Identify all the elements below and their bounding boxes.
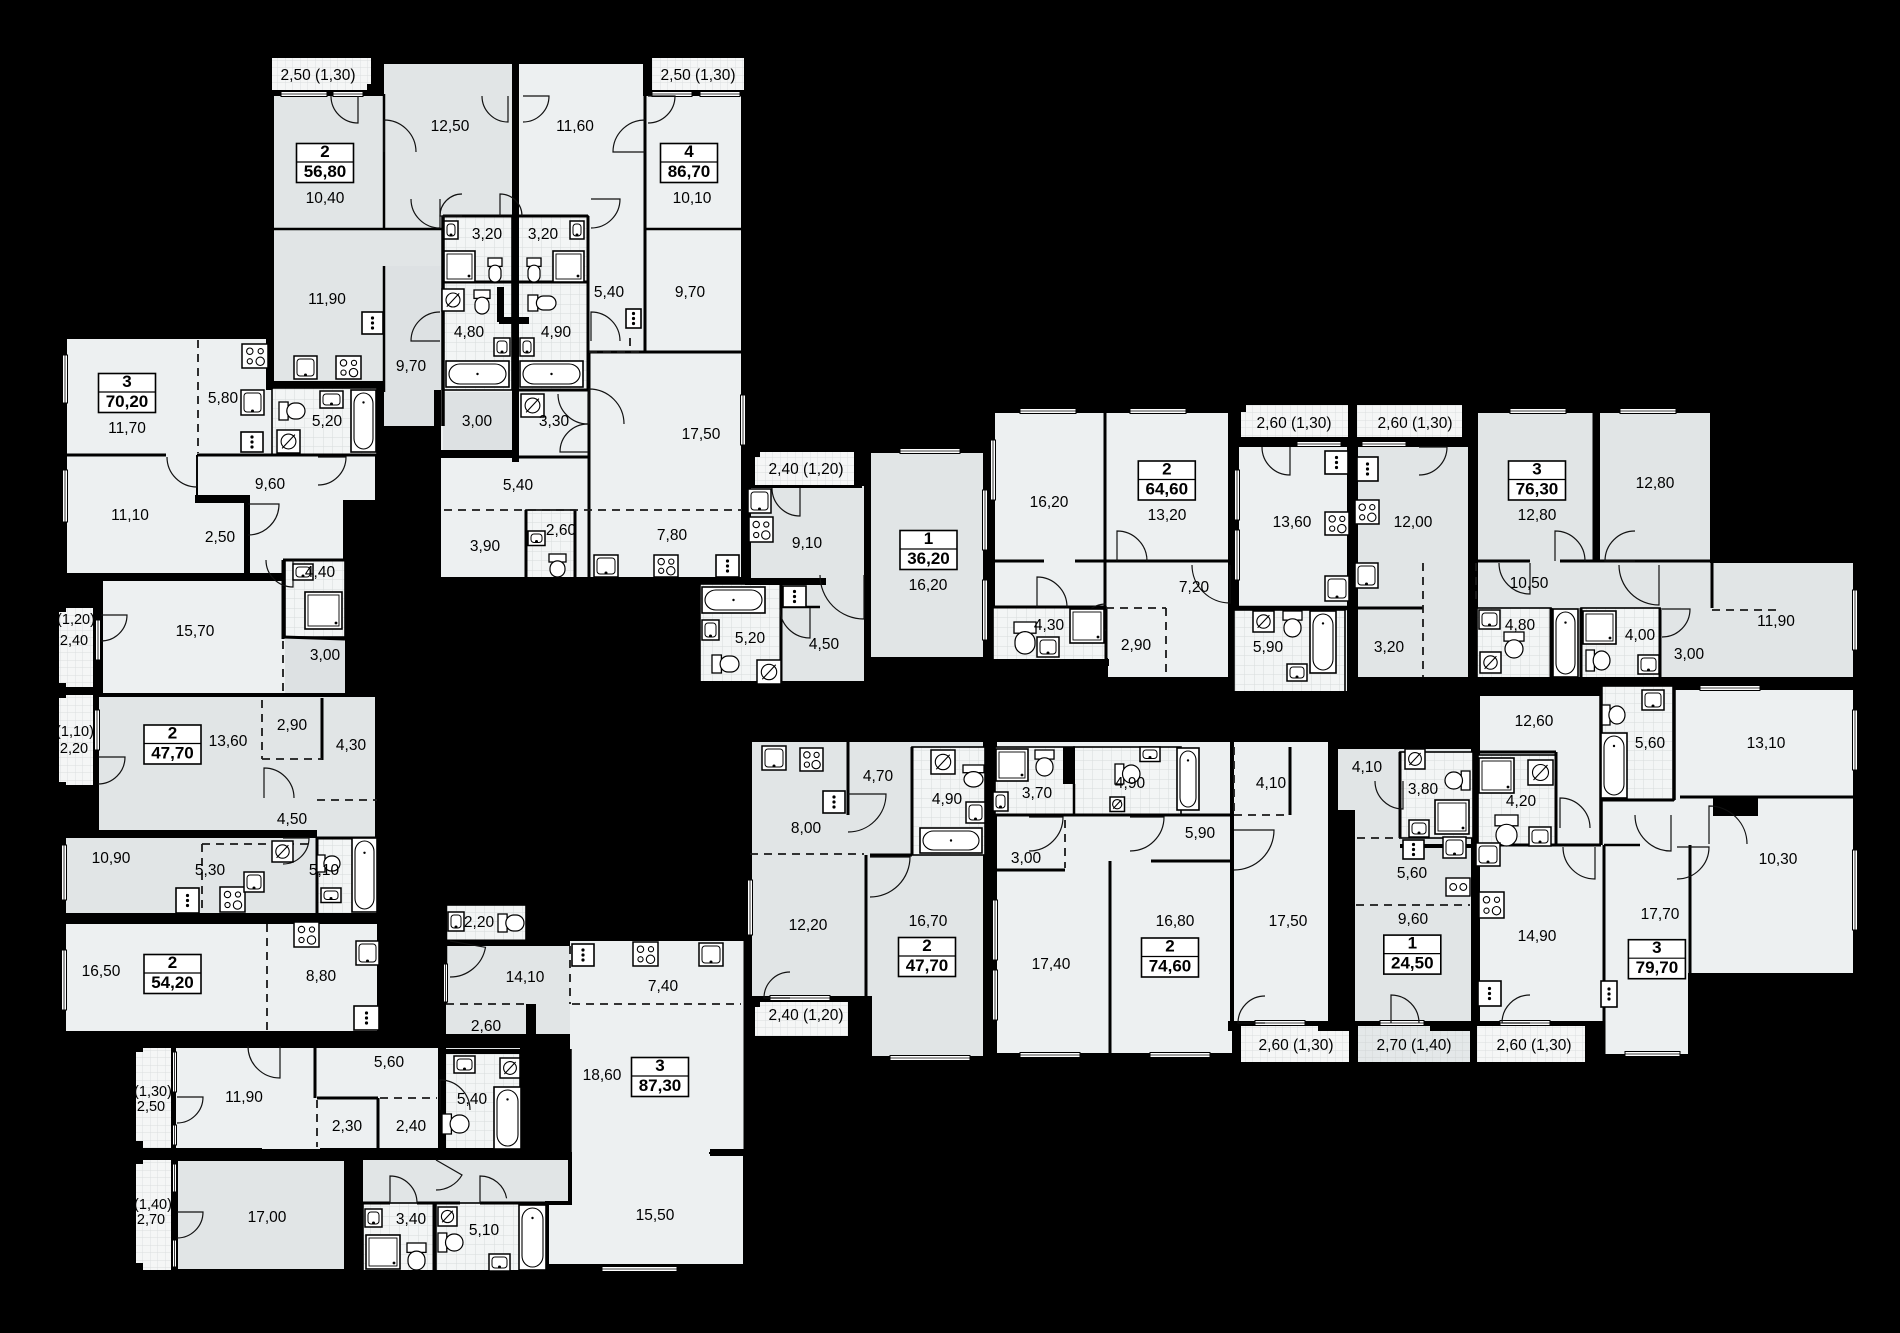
svg-text:2,50 (1,30): 2,50 (1,30): [281, 67, 356, 84]
svg-text:12,80: 12,80: [1636, 475, 1675, 492]
svg-text:2,60 (1,30): 2,60 (1,30): [1497, 1037, 1572, 1054]
svg-text:11,60: 11,60: [556, 118, 594, 135]
svg-text:3: 3: [655, 1056, 664, 1075]
svg-text:5,20: 5,20: [312, 413, 343, 430]
svg-text:4,50: 4,50: [277, 811, 308, 828]
svg-text:10,50: 10,50: [1510, 575, 1549, 592]
svg-text:3: 3: [122, 372, 131, 391]
svg-text:5,40: 5,40: [503, 477, 534, 494]
svg-text:70,20: 70,20: [106, 392, 149, 411]
svg-text:12,20: 12,20: [789, 917, 828, 934]
svg-text:54,20: 54,20: [151, 973, 194, 992]
svg-text:2: 2: [320, 142, 329, 161]
svg-text:3,90: 3,90: [470, 538, 501, 555]
svg-text:4,00: 4,00: [1625, 627, 1656, 644]
svg-text:17,50: 17,50: [1269, 913, 1308, 930]
svg-text:3,00: 3,00: [1674, 646, 1705, 663]
svg-text:2,70 (1,40): 2,70 (1,40): [1377, 1037, 1452, 1054]
svg-text:7,80: 7,80: [657, 527, 688, 544]
svg-text:13,60: 13,60: [1273, 514, 1312, 531]
svg-text:8,00: 8,00: [791, 820, 822, 837]
svg-text:(1,40): (1,40): [134, 1197, 172, 1213]
svg-text:2,60 (1,30): 2,60 (1,30): [1259, 1037, 1334, 1054]
svg-text:3,20: 3,20: [528, 226, 559, 243]
svg-text:18,60: 18,60: [583, 1067, 622, 1084]
svg-text:4,30: 4,30: [336, 737, 367, 754]
svg-text:3: 3: [1532, 460, 1541, 479]
svg-text:2: 2: [1165, 937, 1174, 956]
svg-text:3,00: 3,00: [462, 413, 493, 430]
svg-text:76,30: 76,30: [1516, 480, 1559, 499]
svg-text:3,20: 3,20: [1374, 639, 1405, 656]
svg-text:5,90: 5,90: [1185, 825, 1216, 842]
svg-text:10,30: 10,30: [1759, 851, 1798, 868]
svg-text:2,90: 2,90: [1121, 637, 1152, 654]
svg-text:2,20: 2,20: [60, 741, 88, 757]
svg-text:16,70: 16,70: [909, 913, 948, 930]
svg-text:3,00: 3,00: [1011, 850, 1042, 867]
svg-text:2,40 (1,20): 2,40 (1,20): [769, 461, 844, 478]
svg-text:5,40: 5,40: [457, 1091, 488, 1108]
svg-text:2,20: 2,20: [464, 914, 495, 931]
svg-text:10,90: 10,90: [92, 850, 131, 867]
svg-text:5,60: 5,60: [1397, 865, 1428, 882]
svg-text:16,50: 16,50: [82, 963, 121, 980]
svg-text:12,00: 12,00: [1394, 514, 1433, 531]
svg-text:3,00: 3,00: [310, 647, 341, 664]
svg-text:2: 2: [168, 953, 177, 972]
svg-text:11,90: 11,90: [225, 1089, 263, 1106]
svg-text:13,10: 13,10: [1747, 735, 1786, 752]
svg-text:17,50: 17,50: [682, 426, 721, 443]
svg-text:9,70: 9,70: [675, 284, 706, 301]
svg-text:2,40 (1,20): 2,40 (1,20): [769, 1007, 844, 1024]
svg-text:4,90: 4,90: [541, 324, 572, 341]
svg-text:17,00: 17,00: [248, 1209, 287, 1226]
svg-text:2,60: 2,60: [471, 1018, 502, 1035]
svg-text:24,50: 24,50: [1391, 954, 1434, 973]
svg-text:4,40: 4,40: [305, 564, 336, 581]
svg-text:2,50 (1,30): 2,50 (1,30): [661, 67, 736, 84]
svg-text:2,50: 2,50: [137, 1099, 165, 1115]
svg-text:4,10: 4,10: [1256, 775, 1287, 792]
svg-text:4,90: 4,90: [1115, 775, 1146, 792]
svg-text:2: 2: [1162, 460, 1171, 479]
svg-text:3,20: 3,20: [472, 226, 503, 243]
svg-text:5,30: 5,30: [195, 862, 226, 879]
svg-text:9,60: 9,60: [1398, 911, 1429, 928]
svg-text:15,70: 15,70: [176, 623, 215, 640]
svg-text:3: 3: [1652, 938, 1661, 957]
svg-text:2,70: 2,70: [137, 1212, 165, 1228]
svg-text:14,10: 14,10: [506, 969, 545, 986]
svg-text:87,30: 87,30: [639, 1076, 682, 1095]
svg-text:9,70: 9,70: [396, 358, 427, 375]
svg-text:15,50: 15,50: [636, 1207, 675, 1224]
svg-text:4,20: 4,20: [1506, 793, 1537, 810]
svg-text:3,40: 3,40: [396, 1211, 427, 1228]
svg-text:3,30: 3,30: [539, 413, 570, 430]
svg-text:11,10: 11,10: [111, 507, 149, 524]
svg-text:10,10: 10,10: [673, 190, 712, 207]
svg-text:2: 2: [922, 936, 931, 955]
svg-text:56,80: 56,80: [304, 162, 347, 181]
svg-text:12,60: 12,60: [1515, 713, 1554, 730]
svg-text:5,90: 5,90: [1253, 639, 1284, 656]
svg-text:4: 4: [684, 142, 694, 161]
svg-text:74,60: 74,60: [1149, 957, 1192, 976]
svg-text:1: 1: [1408, 934, 1417, 953]
svg-text:4,90: 4,90: [932, 791, 963, 808]
svg-text:2,60 (1,30): 2,60 (1,30): [1378, 415, 1453, 432]
svg-text:5,80: 5,80: [208, 390, 239, 407]
svg-text:4,30: 4,30: [1034, 617, 1065, 634]
svg-text:36,20: 36,20: [907, 549, 950, 568]
svg-text:47,70: 47,70: [906, 956, 949, 975]
svg-text:11,70: 11,70: [108, 420, 146, 437]
svg-text:2,60 (1,30): 2,60 (1,30): [1257, 415, 1332, 432]
svg-text:16,20: 16,20: [1030, 494, 1069, 511]
svg-text:3,80: 3,80: [1408, 781, 1439, 798]
svg-text:17,70: 17,70: [1641, 906, 1680, 923]
svg-text:2,30: 2,30: [332, 1118, 363, 1135]
svg-text:12,80: 12,80: [1518, 507, 1557, 524]
svg-text:5,10: 5,10: [469, 1222, 500, 1239]
svg-text:17,40: 17,40: [1032, 956, 1071, 973]
svg-text:14,90: 14,90: [1518, 928, 1557, 945]
svg-text:64,60: 64,60: [1146, 480, 1189, 499]
svg-text:4,50: 4,50: [809, 636, 840, 653]
svg-text:11,90: 11,90: [1757, 613, 1795, 630]
svg-text:5,20: 5,20: [735, 630, 766, 647]
svg-text:4,80: 4,80: [1505, 617, 1536, 634]
svg-text:8,80: 8,80: [306, 968, 337, 985]
svg-text:7,40: 7,40: [648, 978, 679, 995]
svg-text:2,50: 2,50: [205, 529, 236, 546]
svg-text:(1,20): (1,20): [57, 612, 95, 628]
svg-text:16,80: 16,80: [1156, 913, 1195, 930]
svg-text:12,50: 12,50: [431, 118, 470, 135]
svg-text:4,70: 4,70: [863, 768, 894, 785]
svg-text:5,60: 5,60: [1635, 735, 1666, 752]
svg-text:16,20: 16,20: [909, 577, 948, 594]
svg-text:(1,30): (1,30): [134, 1084, 172, 1100]
svg-text:5,40: 5,40: [594, 284, 625, 301]
svg-text:2,40: 2,40: [60, 633, 88, 649]
svg-text:4,80: 4,80: [454, 324, 485, 341]
svg-text:2,40: 2,40: [396, 1118, 427, 1135]
svg-text:47,70: 47,70: [151, 744, 194, 763]
svg-text:10,40: 10,40: [306, 190, 345, 207]
svg-text:(1,10): (1,10): [56, 724, 94, 740]
svg-text:9,60: 9,60: [255, 476, 286, 493]
svg-text:13,60: 13,60: [209, 733, 248, 750]
svg-text:86,70: 86,70: [668, 162, 711, 181]
svg-text:79,70: 79,70: [1636, 958, 1679, 977]
svg-text:3,70: 3,70: [1022, 785, 1053, 802]
svg-text:5,60: 5,60: [374, 1054, 405, 1071]
svg-text:2: 2: [168, 724, 177, 743]
svg-text:9,10: 9,10: [792, 535, 823, 552]
svg-text:4,10: 4,10: [1352, 759, 1383, 776]
svg-text:13,20: 13,20: [1148, 507, 1187, 524]
svg-text:1: 1: [924, 529, 933, 548]
svg-text:2,60: 2,60: [546, 522, 577, 539]
svg-text:7,20: 7,20: [1179, 579, 1210, 596]
svg-text:2,90: 2,90: [277, 717, 308, 734]
svg-text:11,90: 11,90: [308, 291, 346, 308]
svg-text:5,10: 5,10: [309, 862, 340, 879]
